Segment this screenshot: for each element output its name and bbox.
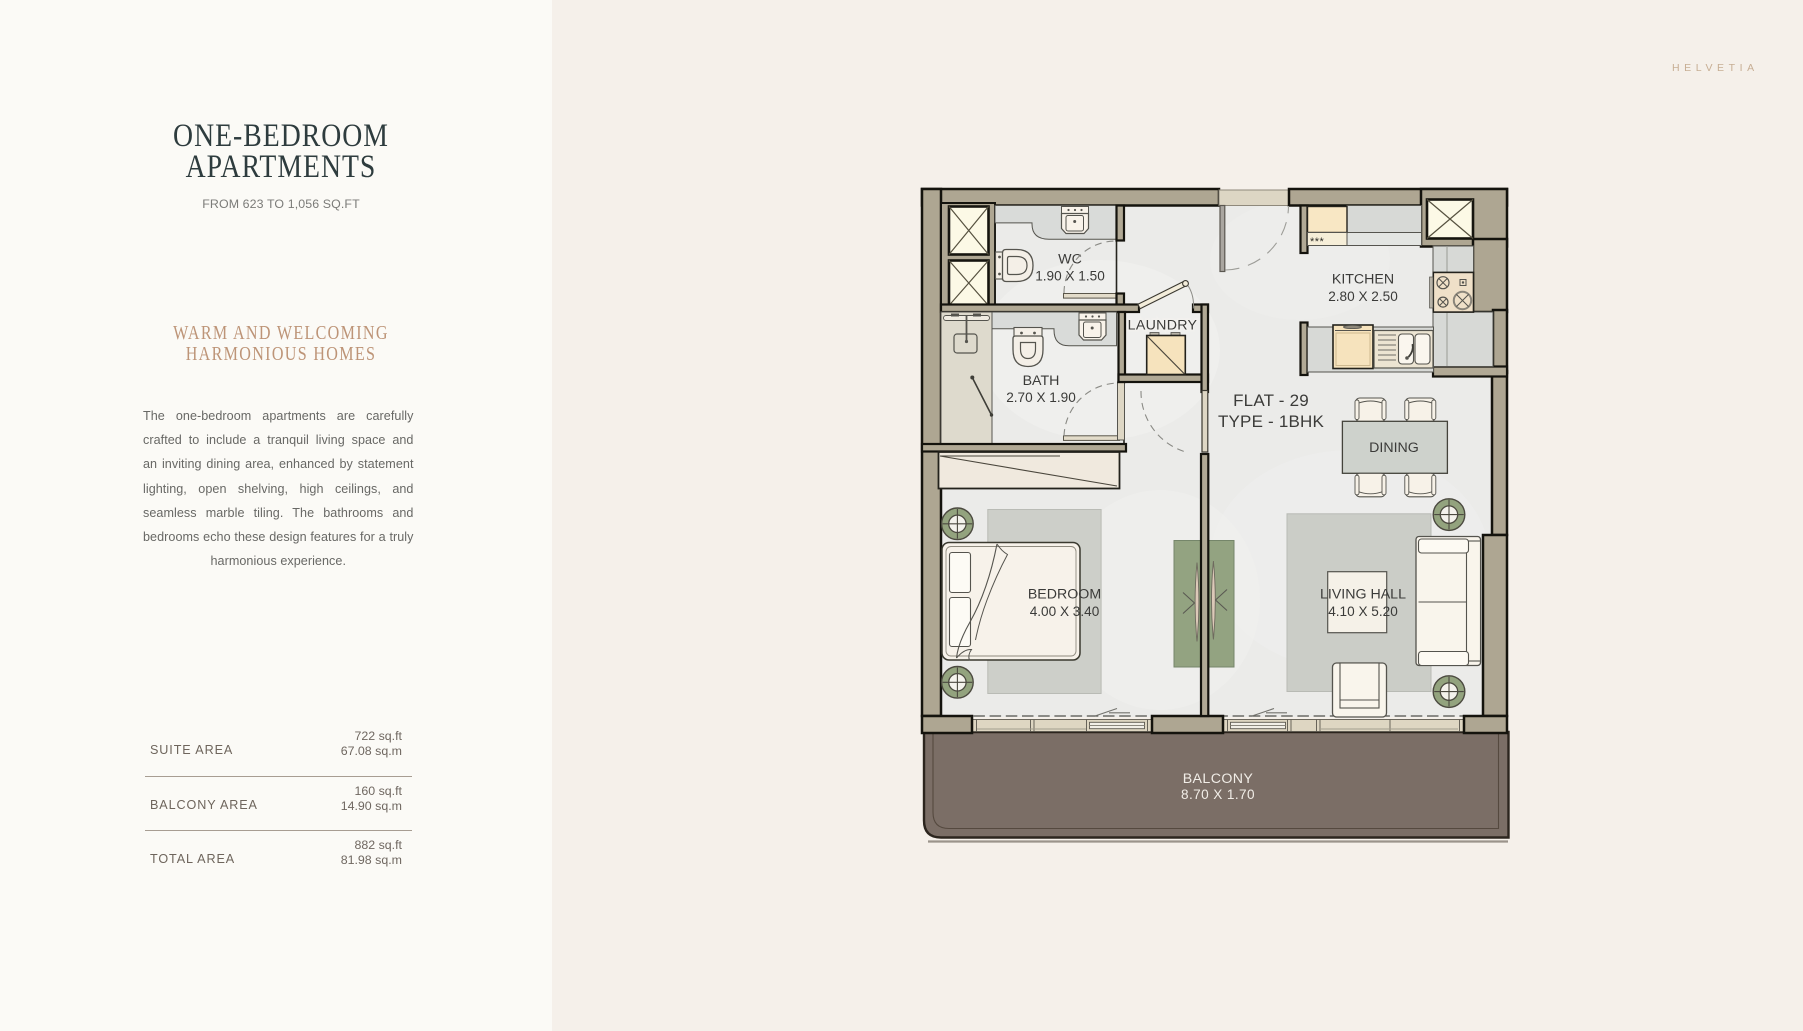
svg-text:4.00 X 3.40: 4.00 X 3.40 — [1030, 604, 1100, 619]
svg-text:WC: WC — [1058, 252, 1082, 268]
svg-text:BALCONY: BALCONY — [1183, 771, 1254, 787]
svg-text:LAUNDRY: LAUNDRY — [1128, 318, 1198, 334]
svg-text:2.70 X 1.90: 2.70 X 1.90 — [1006, 390, 1076, 405]
svg-text:DINING: DINING — [1369, 440, 1419, 456]
svg-text:LIVING HALL: LIVING HALL — [1320, 587, 1406, 603]
svg-text:4.10 X 5.20: 4.10 X 5.20 — [1328, 604, 1398, 619]
svg-text:***: *** — [1310, 236, 1325, 248]
svg-text:2.80 X 2.50: 2.80 X 2.50 — [1328, 289, 1398, 304]
svg-text:KITCHEN: KITCHEN — [1332, 272, 1394, 288]
svg-text:1.90 X 1.50: 1.90 X 1.50 — [1035, 269, 1105, 284]
svg-text:BATH: BATH — [1023, 373, 1060, 389]
svg-text:FLAT - 29: FLAT - 29 — [1233, 391, 1309, 410]
svg-text:BEDROOM: BEDROOM — [1028, 587, 1101, 603]
svg-text:8.70 X 1.70: 8.70 X 1.70 — [1181, 787, 1255, 802]
svg-text:TYPE - 1BHK: TYPE - 1BHK — [1218, 412, 1325, 431]
